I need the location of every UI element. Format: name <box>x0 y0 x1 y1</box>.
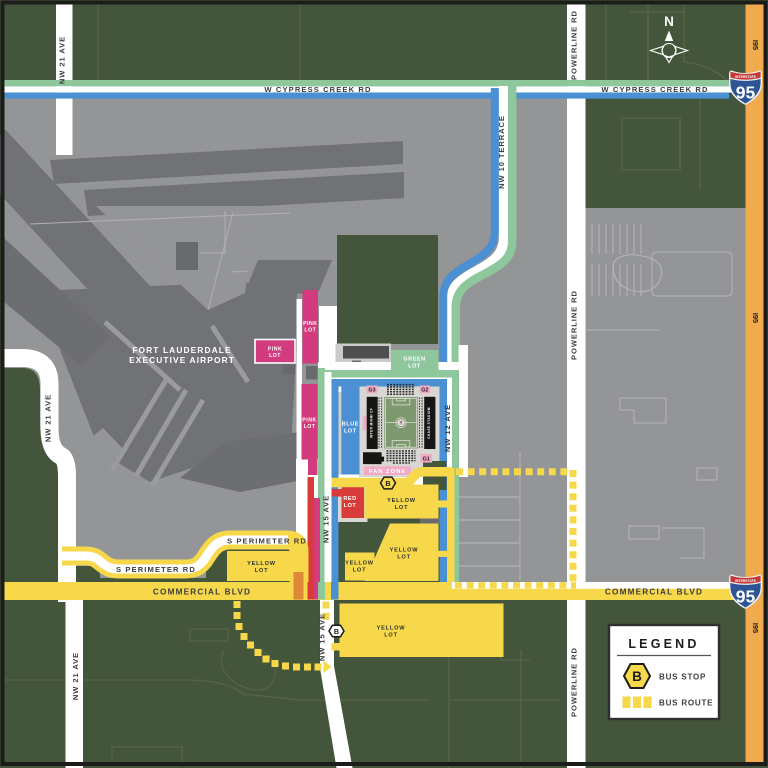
svg-text:PINK: PINK <box>268 347 282 353</box>
svg-text:G2: G2 <box>421 388 428 394</box>
svg-text:LOT: LOT <box>344 503 357 509</box>
svg-text:BUS ROUTE: BUS ROUTE <box>659 699 713 708</box>
svg-text:I95: I95 <box>751 40 760 50</box>
svg-text:PINK: PINK <box>303 321 317 327</box>
svg-text:LOT: LOT <box>384 633 398 639</box>
svg-text:S PERIMETER RD: S PERIMETER RD <box>227 537 307 546</box>
svg-text:B: B <box>334 627 339 636</box>
svg-text:B: B <box>385 479 390 488</box>
svg-text:LOT: LOT <box>395 505 409 511</box>
svg-text:INTERSTATE: INTERSTATE <box>735 75 757 79</box>
svg-text:COMMERCIAL BLVD: COMMERCIAL BLVD <box>605 588 703 597</box>
svg-text:INTERSTATE: INTERSTATE <box>735 579 757 583</box>
svg-text:NW 12 AVE: NW 12 AVE <box>443 404 452 452</box>
svg-text:FORT LAUDERDALE: FORT LAUDERDALE <box>132 345 231 355</box>
svg-text:W CYPRESS CREEK RD: W CYPRESS CREEK RD <box>264 85 371 94</box>
svg-text:I95: I95 <box>751 313 760 323</box>
svg-text:COMMERCIAL BLVD: COMMERCIAL BLVD <box>153 588 251 597</box>
svg-text:LOT: LOT <box>304 328 316 334</box>
svg-text:LOT: LOT <box>255 568 269 574</box>
svg-text:NW 21 AVE: NW 21 AVE <box>71 652 80 700</box>
svg-text:95: 95 <box>736 83 756 103</box>
svg-text:LOT: LOT <box>353 568 367 574</box>
svg-text:NW 15 AVE: NW 15 AVE <box>322 495 331 543</box>
svg-text:BUS STOP: BUS STOP <box>659 673 706 682</box>
svg-text:POWERLINE RD: POWERLINE RD <box>570 647 579 717</box>
svg-text:95: 95 <box>736 587 756 607</box>
svg-text:NW 21 AVE: NW 21 AVE <box>44 394 53 442</box>
svg-text:NW 15 AVE: NW 15 AVE <box>318 613 327 661</box>
svg-text:NW 21 AVE: NW 21 AVE <box>58 36 67 84</box>
svg-text:LEGEND: LEGEND <box>628 637 699 651</box>
svg-text:FAN ZONE: FAN ZONE <box>369 469 406 475</box>
svg-text:BLUE: BLUE <box>342 422 359 428</box>
svg-text:EXECUTIVE AIRPORT: EXECUTIVE AIRPORT <box>129 355 235 365</box>
svg-text:LOT: LOT <box>408 364 421 370</box>
svg-text:YELLOW: YELLOW <box>377 626 406 632</box>
svg-text:PINK: PINK <box>302 418 316 424</box>
svg-text:POWERLINE RD: POWERLINE RD <box>570 290 579 360</box>
svg-text:S PERIMETER RD: S PERIMETER RD <box>116 565 196 574</box>
svg-text:YELLOW: YELLOW <box>247 561 276 567</box>
svg-text:CHASE STADIUM: CHASE STADIUM <box>427 407 431 439</box>
svg-text:GREEN: GREEN <box>403 357 425 363</box>
svg-text:G1: G1 <box>423 457 430 463</box>
svg-text:B: B <box>632 669 642 684</box>
svg-text:LOT: LOT <box>344 429 357 435</box>
svg-text:LOT: LOT <box>269 353 281 359</box>
svg-text:I95: I95 <box>751 623 760 633</box>
svg-text:NW 10 TERRACE: NW 10 TERRACE <box>497 115 506 189</box>
svg-text:POWERLINE RD: POWERLINE RD <box>570 10 579 80</box>
svg-text:G3: G3 <box>368 388 375 394</box>
svg-text:YELLOW: YELLOW <box>390 548 419 554</box>
svg-text:W CYPRESS CREEK RD: W CYPRESS CREEK RD <box>601 85 708 94</box>
svg-text:LOT: LOT <box>304 424 316 430</box>
svg-text:YELLOW: YELLOW <box>387 498 416 504</box>
svg-text:YELLOW: YELLOW <box>345 561 374 567</box>
svg-text:RED: RED <box>343 496 356 502</box>
svg-text:LOT: LOT <box>397 555 411 561</box>
svg-text:INTER MIAMI CF: INTER MIAMI CF <box>370 408 374 439</box>
svg-text:N: N <box>664 14 674 29</box>
